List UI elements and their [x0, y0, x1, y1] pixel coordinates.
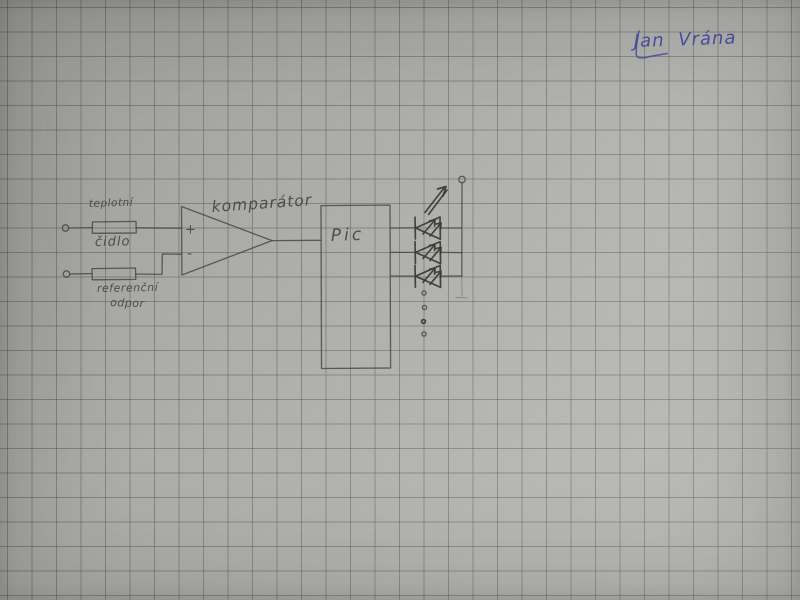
- comparator-plus-input: +: [185, 223, 196, 238]
- pic-label: Pic: [330, 225, 364, 246]
- led-emission-arrow-large: [425, 187, 447, 215]
- temperature-sensor-label-1: teplotní: [89, 196, 135, 210]
- signature-text: Jan Vrána: [630, 27, 736, 52]
- schematic-drawing: teplotní čidlo referenční odpor + - komp…: [0, 0, 800, 600]
- reference-resistor-label-2: odpor: [110, 296, 146, 310]
- supply-terminal: [459, 176, 465, 182]
- led-icon: [415, 217, 462, 239]
- temperature-sensor-resistor: [69, 221, 182, 233]
- reference-resistor: [70, 254, 182, 280]
- graph-paper-photo: teplotní čidlo referenční odpor + - komp…: [0, 0, 800, 600]
- signature: Jan Vrána: [630, 27, 736, 57]
- comparator-minus-input: -: [187, 246, 192, 262]
- ellipsis-dots: [422, 291, 427, 336]
- input-terminal-bottom: [63, 271, 69, 277]
- temperature-sensor-label-2: čidlo: [95, 234, 131, 250]
- comparator-triangle: [182, 207, 322, 276]
- pic-output-wires: [391, 228, 415, 276]
- reference-resistor-label-1: referenční: [97, 281, 160, 295]
- led-icon: [415, 242, 462, 264]
- input-terminal-top: [62, 225, 68, 231]
- led-icon: [415, 265, 462, 287]
- led-common-bus: [456, 176, 467, 297]
- comparator-label: komparátor: [211, 191, 313, 216]
